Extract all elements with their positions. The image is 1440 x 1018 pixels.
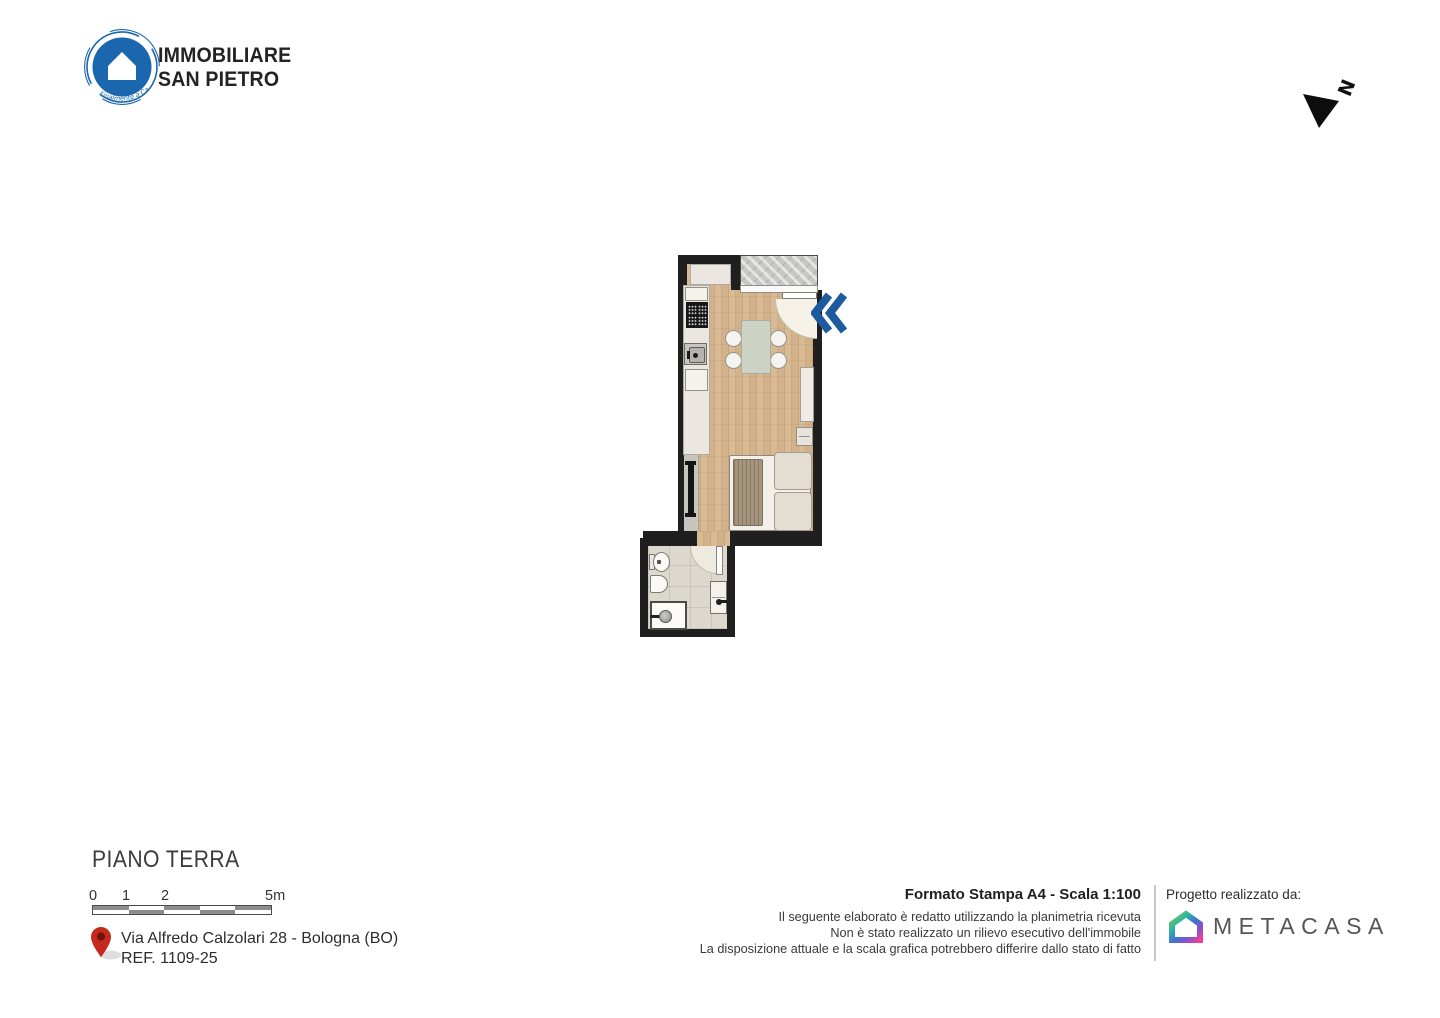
bed-duvet (733, 459, 763, 526)
chair (770, 330, 787, 347)
wall-top-left (678, 255, 740, 264)
scale-label-1: 1 (122, 888, 130, 904)
washbasin (710, 581, 727, 614)
kitchen-stove (686, 302, 708, 328)
bathroom-wall-bottom (640, 629, 735, 637)
disclaimer-line1: Il seguente elaborato è redatto utilizza… (501, 910, 1141, 926)
disclaimer: Il seguente elaborato è redatto utilizza… (501, 910, 1141, 957)
scale-label-2: 2 (161, 888, 169, 904)
footer-divider (1154, 885, 1156, 961)
kitchen-under-sink-cabinet (685, 369, 708, 391)
address-line1: Via Alfredo Calzolari 28 - Bologna (BO) (121, 929, 398, 949)
metacasa-logo-icon (1166, 907, 1206, 947)
nightstand (796, 427, 813, 446)
disclaimer-line2: Non è stato realizzato un rilievo esecut… (501, 926, 1141, 942)
chair (725, 330, 742, 347)
address-ref: REF. 1109-25 (121, 949, 398, 969)
location-pin-icon (89, 926, 123, 962)
shower (650, 601, 687, 630)
disclaimer-line3: La disposizione attuale e la scala grafi… (501, 942, 1141, 958)
bidet (650, 575, 668, 593)
chair (725, 352, 742, 369)
kitchen-counter-top (690, 264, 731, 285)
radiator-cap-bottom (685, 513, 696, 517)
page: Finalmente a Casa IMMOBILIARE SAN PIETRO… (0, 0, 1440, 1018)
bathroom-door-leaf (716, 546, 723, 575)
kitchen-sink (684, 343, 707, 365)
radiator (688, 464, 694, 514)
shower-head (659, 610, 672, 623)
window-ledge (740, 255, 818, 286)
bathroom-door-threshold (697, 531, 730, 546)
dining-table (741, 320, 771, 374)
credit-label: Progetto realizzato da: (1166, 887, 1301, 902)
scale-label-0: 0 (89, 888, 97, 904)
bed-pillow-top (774, 452, 812, 490)
scale-bar (92, 905, 272, 915)
property-address: Via Alfredo Calzolari 28 - Bologna (BO) … (121, 929, 398, 968)
bed-pillow-bottom (774, 492, 812, 531)
scale-label-5m: 5m (265, 888, 285, 904)
bathroom-wall-right (727, 546, 735, 637)
credit-brand: METACASA (1213, 913, 1390, 940)
toilet-bowl (653, 552, 670, 572)
wardrobe (800, 367, 814, 422)
entrance-arrow-icon (811, 292, 847, 334)
chair (770, 352, 787, 369)
floor-label: PIANO TERRA (92, 846, 240, 874)
print-format: Formato Stampa A4 - Scala 1:100 (521, 886, 1141, 903)
wall-bottom-left-segment (643, 531, 697, 546)
kitchen-cabinet (685, 287, 708, 301)
bathroom-wall-left (640, 538, 648, 637)
wall-bottom-right-segment (730, 531, 822, 546)
